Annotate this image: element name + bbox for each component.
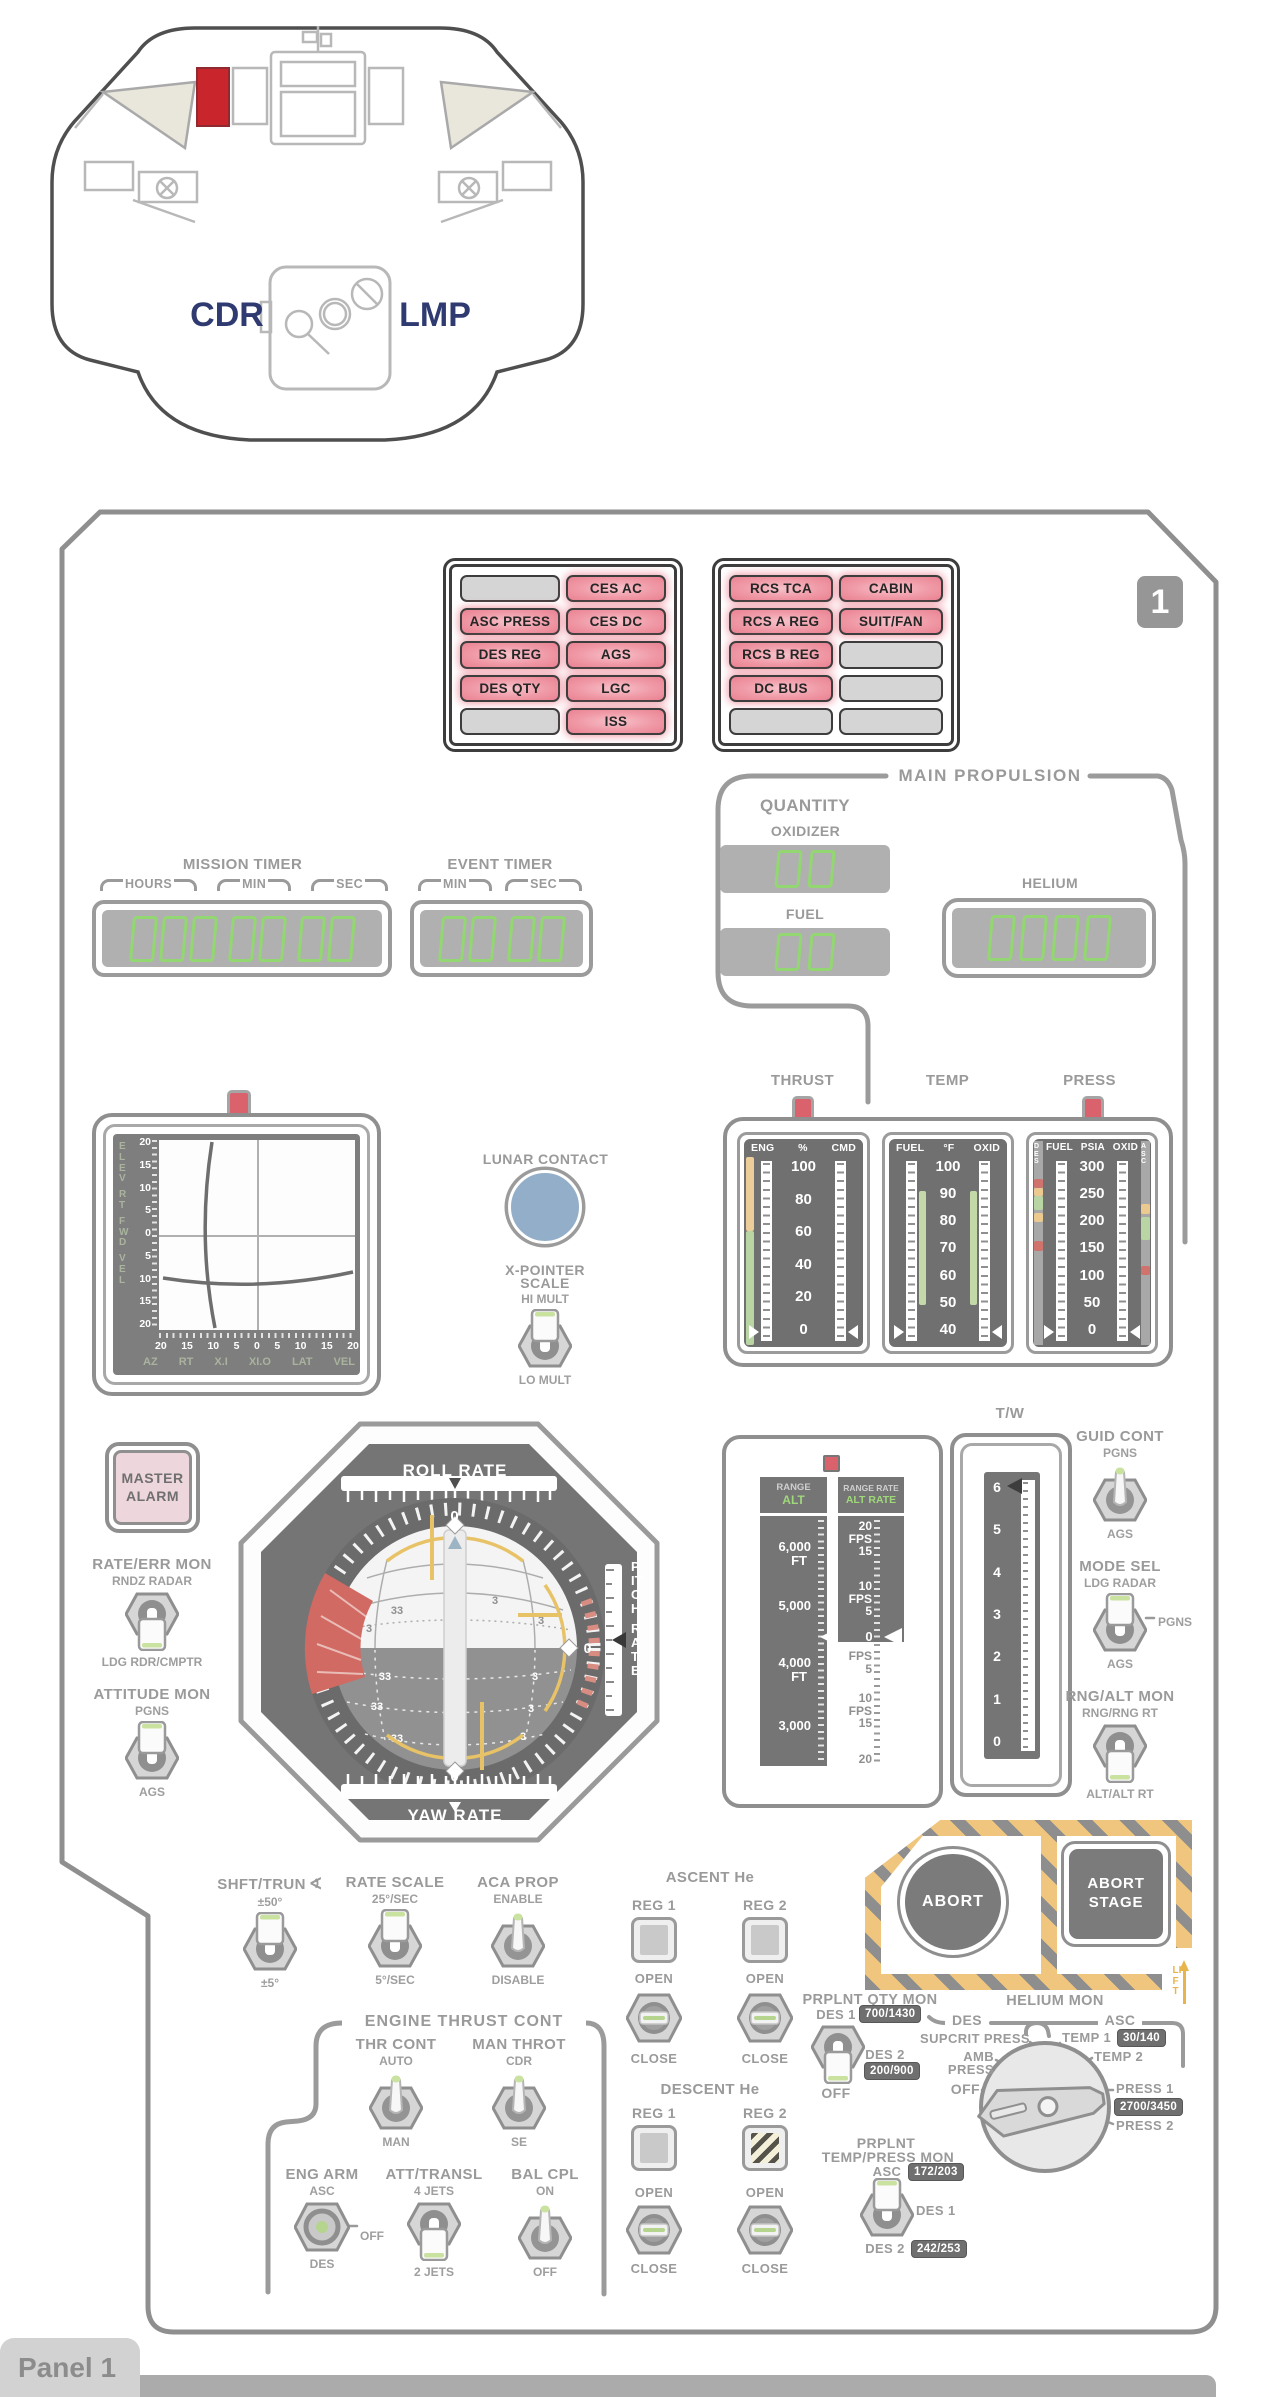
ascent-reg2-valve[interactable] <box>737 1992 793 2044</box>
descent-reg1-valve[interactable] <box>626 2204 682 2256</box>
thrust-scale: 10080 6040 200 <box>744 1159 863 1337</box>
x-pointer-plot <box>159 1140 355 1330</box>
oxidizer-quantity-display <box>720 845 890 893</box>
des2-value-badge: 242/253 <box>911 2240 967 2258</box>
x-pointer-vertical-needle <box>205 1142 215 1328</box>
bal-cpl-title: BAL CPL <box>511 2166 579 2183</box>
shft-trun-switch[interactable] <box>243 1912 297 1972</box>
propulsion-gauge-cluster: ENG%CMD 10080 6040 200 FUEL°FOXID <box>723 1117 1173 1367</box>
bottom-bar <box>118 2375 1216 2397</box>
thrust-gauge: ENG%CMD 10080 6040 200 <box>737 1132 870 1354</box>
close-label: CLOSE <box>730 2262 800 2277</box>
hi-mult-label: HI MULT <box>521 1292 569 1306</box>
temp-scale: 10090 8070 6050 40 <box>889 1159 1007 1337</box>
des-label: DES <box>310 2257 335 2271</box>
x-pointer-side-axis-labels: ELEV RT FWD VEL <box>119 1142 129 1287</box>
off-label: OFF <box>533 2265 557 2279</box>
des2-value-badge: 200/900 <box>864 2062 920 2080</box>
helium-display <box>942 898 1156 978</box>
ldg-rdr-cmptr-label: LDG RDR/CMPTR <box>102 1655 203 1669</box>
x-pointer-horizontal-scale: 201510 505 101520 <box>155 1340 359 1352</box>
close-label: CLOSE <box>619 2052 689 2067</box>
guid-cont-title: GUID CONT <box>1076 1428 1164 1445</box>
caution-light <box>839 641 943 668</box>
roll-rate-zero: 0 <box>435 1508 475 1525</box>
event-timer-title: EVENT TIMER <box>395 857 605 874</box>
x-pointer-vertical-ticks <box>152 1140 157 1330</box>
ascent-reg1-label: REG 1 <box>619 1898 689 1914</box>
helium-label: HELIUM <box>1005 876 1095 892</box>
mission-timer-title: MISSION TIMER <box>125 857 360 874</box>
des-group-label: DES <box>945 2013 989 2029</box>
mode-sel-title: MODE SEL <box>1079 1558 1161 1575</box>
caution-light-rcs-a-reg: RCS A REG <box>729 608 833 635</box>
alt-header: ALT <box>782 1494 804 1508</box>
tape-meter-warning-light <box>823 1455 840 1472</box>
x-pointer-scale-switch-block: X-POINTER SCALE HI MULT LO MULT <box>465 1262 625 1387</box>
on-label: ON <box>536 2184 554 2198</box>
press1-value-badge: 2700/3450 <box>1114 2098 1183 2116</box>
panel-1-diagram: CDR LMP 1 <box>0 0 1275 2397</box>
close-label: CLOSE <box>730 2052 800 2067</box>
descent-reg2-label: REG 2 <box>730 2106 800 2122</box>
temp1-value-badge: 30/140 <box>1117 2029 1166 2047</box>
attitude-mon-title: ATTITUDE MON <box>93 1686 210 1703</box>
event-timer-units: MIN SEC <box>418 877 582 891</box>
amb-press-label: PRESS <box>938 2063 994 2078</box>
svg-text:3: 3 <box>492 1595 498 1607</box>
descent-reg2-valve[interactable] <box>737 2204 793 2256</box>
auto-label: AUTO <box>379 2054 413 2068</box>
x-pointer-mode-labels: AZRT X.IXI.O LATVEL <box>143 1356 355 1368</box>
supcrit-press-label: SUPCRIT PRESS <box>898 2032 1030 2047</box>
guid-cont-switch-block: GUID CONT PGNS AGS <box>1040 1428 1200 1541</box>
open-label: OPEN <box>730 1972 800 1987</box>
man-throt-switch-block: MAN THROT CDR SE <box>439 2036 599 2149</box>
svg-text:3: 3 <box>532 1671 538 1683</box>
rng-alt-mon-title: RNG/ALT MON <box>1065 1688 1174 1705</box>
bal-cpl-switch[interactable] <box>518 2201 572 2261</box>
warning-light-ces-dc: CES DC <box>566 608 666 635</box>
oxidizer-label: OXIDIZER <box>748 824 863 840</box>
att-transl-switch[interactable] <box>407 2201 461 2261</box>
abort-button-label: ABORT <box>922 1893 984 1911</box>
off-label: OFF <box>940 2082 980 2098</box>
temp-gauge-title: TEMP <box>900 1073 995 1090</box>
press-gauge-title: PRESS <box>1042 1073 1137 1090</box>
tw-scale: 654 321 0 <box>988 1480 1006 1748</box>
tw-pointer <box>1007 1478 1022 1494</box>
fuel-label: FUEL <box>775 907 835 923</box>
lunar-contact-label: LUNAR CONTACT <box>468 1152 623 1168</box>
eng-arm-title: ENG ARM <box>285 2166 358 2183</box>
man-label: MAN <box>382 2135 409 2149</box>
x-pointer-indicator: ELEV RT FWD VEL 201510 505 101520 <box>92 1113 381 1396</box>
warning-light-ces-ac: CES AC <box>566 575 666 602</box>
man-throt-title: MAN THROT <box>472 2036 566 2053</box>
press-scale: 300250 200150 10050 0 <box>1033 1159 1151 1337</box>
press2-label: PRESS 2 <box>1116 2119 1172 2134</box>
pgns-label: PGNS <box>1103 1446 1137 1460</box>
rate-scale-title: RATE SCALE <box>346 1874 445 1891</box>
warning-light-iss: ISS <box>566 708 666 735</box>
tw-gauge-title: T/W <box>975 1406 1045 1423</box>
range-rate-header: RANGE RATE <box>843 1484 899 1494</box>
temp1-label: TEMP 1 <box>1062 2031 1114 2046</box>
rng-alt-mon-switch[interactable] <box>1093 1723 1147 1783</box>
thrust-gauge-title: THRUST <box>755 1073 850 1090</box>
open-label: OPEN <box>730 2186 800 2201</box>
sec-label: SEC <box>530 877 557 891</box>
rng-alt-mon-switch-block: RNG/ALT MON RNG/RNG RT ALT/ALT RT <box>1030 1688 1210 1801</box>
warning-light-des-reg: DES REG <box>460 641 560 668</box>
deg5-sec-label: 5°/SEC <box>375 1973 414 1987</box>
caution-light-rcs-tca: RCS TCA <box>729 575 833 602</box>
warning-light-asc-press: ASC PRESS <box>460 608 560 635</box>
x-pointer-horizontal-ticks <box>159 1333 355 1338</box>
press1-label: PRESS 1 <box>1116 2082 1172 2097</box>
abort-stage-label-2: STAGE <box>1089 1894 1144 1913</box>
mission-timer-display <box>92 900 392 977</box>
thr-cont-title: THR CONT <box>356 2036 437 2053</box>
main-propulsion-title: MAIN PROPULSION <box>880 766 1100 785</box>
range-alt-tape-meter: RANGE ALT RANGE RATE ALT RATE 6,000FT 5,… <box>722 1435 943 1808</box>
yaw-rate-zero: 0 <box>435 1768 475 1785</box>
des1-label: DES 1 <box>916 2204 960 2219</box>
se-label: SE <box>511 2135 527 2149</box>
pgns-label: PGNS <box>135 1704 169 1718</box>
warning-light-grid-left: CES AC ASC PRESS CES DC DES REG AGS DES … <box>443 558 683 752</box>
caution-light-dc-bus: DC BUS <box>729 675 833 702</box>
x-pointer-scale-switch[interactable] <box>518 1309 572 1369</box>
svg-text:33: 33 <box>391 1605 403 1617</box>
asc-label: ASC <box>309 2184 334 2198</box>
quantity-label: QUANTITY <box>740 796 870 815</box>
svg-text:3: 3 <box>528 1703 534 1715</box>
pm50-label: ±50° <box>258 1895 283 1909</box>
caution-light <box>839 675 943 702</box>
caution-light-cabin: CABIN <box>839 575 943 602</box>
aca-prop-switch-block: ACA PROP ENABLE DISABLE <box>438 1874 598 1987</box>
off-label: OFF <box>816 2086 856 2102</box>
master-alarm-label-1: MASTER <box>121 1470 183 1488</box>
ascent-reg1-talkback <box>631 1917 677 1963</box>
roll-rate-label: ROLL RATE <box>355 1461 555 1481</box>
eng-arm-switch[interactable] <box>294 2201 350 2253</box>
descent-he-title: DESCENT He <box>640 2082 780 2099</box>
press-gauge: DES ASC FUELPSIAOXID <box>1026 1132 1158 1354</box>
des1-label: DES 1 <box>814 2008 858 2023</box>
caution-light-rcs-b-reg: RCS B REG <box>729 641 833 668</box>
x-pointer-vertical-scale: 201510 505 101520 <box>131 1136 151 1330</box>
descent-reg1-label: REG 1 <box>619 2106 689 2122</box>
cdr-label: CDR <box>506 2054 532 2068</box>
guid-cont-switch[interactable] <box>1093 1463 1147 1523</box>
ascent-reg1-valve[interactable] <box>626 1992 682 2044</box>
attitude-mon-switch[interactable] <box>125 1721 179 1781</box>
warning-light <box>460 708 560 735</box>
rate-scale-switch[interactable] <box>368 1909 422 1969</box>
warning-light <box>460 575 560 602</box>
close-label: CLOSE <box>619 2262 689 2277</box>
helium-mon-title: HELIUM MON <box>975 1993 1135 2009</box>
svg-text:33: 33 <box>371 1701 383 1713</box>
min-label: MIN <box>242 877 266 891</box>
temp-gauge: FUEL°FOXID 10090 8070 6050 40 <box>882 1132 1014 1354</box>
tp-mon-switch[interactable] <box>860 2178 914 2238</box>
alt-tape: 6,000FT 5,000 4,000FT 3,000 <box>760 1516 827 1766</box>
sec-label: SEC <box>336 877 363 891</box>
rng-rng-rt-label: RNG/RNG RT <box>1082 1706 1158 1720</box>
ags-label: AGS <box>1107 1657 1133 1671</box>
fuel-quantity-display <box>720 928 890 976</box>
des2-label: DES 2 <box>862 2048 908 2063</box>
alt-rate-header: ALT RATE <box>846 1494 896 1506</box>
page-tab-panel-1[interactable]: Panel 1 <box>0 2338 140 2397</box>
abort-stage-label-1: ABORT <box>1087 1875 1144 1894</box>
lo-mult-label: LO MULT <box>519 1373 571 1387</box>
temp2-label: TEMP 2 <box>1094 2050 1148 2065</box>
x-pointer-scale-title-2: SCALE <box>520 1275 569 1291</box>
ags-label: AGS <box>1107 1527 1133 1541</box>
thr-cont-switch[interactable] <box>369 2071 423 2131</box>
alt-alt-rt-label: ALT/ALT RT <box>1086 1787 1154 1801</box>
master-alarm-button[interactable]: MASTER ALARM <box>105 1442 200 1533</box>
warning-light-des-qty: DES QTY <box>460 675 560 702</box>
warning-light-lgc: LGC <box>566 675 666 702</box>
4-jets-label: 4 JETS <box>414 2184 454 2198</box>
rate-err-mon-title: RATE/ERR MON <box>92 1556 212 1573</box>
range-header: RANGE <box>776 1483 810 1494</box>
asc-group-label: ASC <box>1098 2013 1142 2029</box>
prplnt-qty-mon-switch[interactable] <box>811 2024 865 2084</box>
attitude-mon-switch-block: ATTITUDE MON PGNS AGS <box>62 1686 242 1799</box>
deg25-sec-label: 25°/SEC <box>372 1892 418 1906</box>
enable-label: ENABLE <box>493 1892 542 1906</box>
master-alarm-label-2: ALARM <box>126 1488 179 1506</box>
shft-trun-title: SHFT/TRUN <box>217 1876 306 1893</box>
rndz-radar-label: RNDZ RADAR <box>112 1574 192 1588</box>
ags-label: AGS <box>139 1785 165 1799</box>
des1-value-badge: 700/1430 <box>859 2005 921 2023</box>
disable-label: DISABLE <box>492 1973 545 1987</box>
ascent-reg2-talkback <box>742 1917 788 1963</box>
mode-sel-switch-block: MODE SEL LDG RADAR AGS PGNS <box>1040 1558 1200 1671</box>
caution-light-grid-right: RCS TCA CABIN RCS A REG SUIT/FAN RCS B R… <box>712 558 960 752</box>
panel-number-badge: 1 <box>1137 576 1183 628</box>
svg-text:33: 33 <box>379 1671 391 1683</box>
x-pointer-horizontal-needle <box>163 1272 353 1284</box>
ascent-he-title: ASCENT He <box>640 1870 780 1887</box>
min-label: MIN <box>443 877 467 891</box>
descent-reg1-talkback <box>631 2125 677 2171</box>
mission-timer-units: HOURS MIN SEC <box>100 877 388 891</box>
man-throt-switch[interactable] <box>492 2071 546 2131</box>
event-timer-display <box>410 900 593 977</box>
svg-text:3: 3 <box>366 1623 372 1635</box>
rate-err-mon-switch[interactable] <box>125 1591 179 1651</box>
2-jets-label: 2 JETS <box>414 2265 454 2279</box>
rate-err-mon-switch-block: RATE/ERR MON RNDZ RADAR LDG RDR/CMPTR <box>62 1556 242 1669</box>
ascent-reg2-label: REG 2 <box>730 1898 800 1914</box>
bal-cpl-switch-block: BAL CPL ON OFF <box>465 2166 625 2279</box>
caution-light <box>839 708 943 735</box>
mode-sel-switch[interactable] <box>1093 1593 1147 1653</box>
aca-prop-switch[interactable] <box>491 1909 545 1969</box>
des2-label: DES 2 <box>862 2242 908 2257</box>
yaw-rate-label: YAW RATE <box>355 1806 555 1826</box>
ldg-radar-label: LDG RADAR <box>1084 1576 1156 1590</box>
open-label: OPEN <box>619 1972 689 1987</box>
hours-label: HOURS <box>125 877 172 891</box>
lift-tab: LIFT <box>1162 1948 1192 2016</box>
pgns-label: PGNS <box>1158 1615 1192 1629</box>
caution-light-suit-fan: SUIT/FAN <box>839 608 943 635</box>
fdai-attitude-indicator: 33 3 3 3 33 3 33 33 3 33 33 3 <box>235 1418 675 1858</box>
descent-reg2-talkback <box>742 2125 788 2171</box>
aca-prop-title: ACA PROP <box>477 1874 559 1891</box>
abort-stage-button[interactable]: ABORT STAGE <box>1061 1841 1171 1947</box>
open-label: OPEN <box>619 2186 689 2201</box>
lunar-contact-light <box>508 1170 582 1244</box>
pitch-rate-label: PITCH RATE <box>631 1560 643 1678</box>
abort-button[interactable]: ABORT <box>897 1846 1009 1958</box>
pm5-label: ±5° <box>261 1976 279 1990</box>
warning-light-ags: AGS <box>566 641 666 668</box>
pitch-rate-zero: 0 <box>578 1640 598 1656</box>
caution-light <box>729 708 833 735</box>
engine-thrust-cont-title: ENGINE THRUST CONT <box>342 2013 586 2031</box>
asc-value-badge: 172/203 <box>908 2163 964 2181</box>
